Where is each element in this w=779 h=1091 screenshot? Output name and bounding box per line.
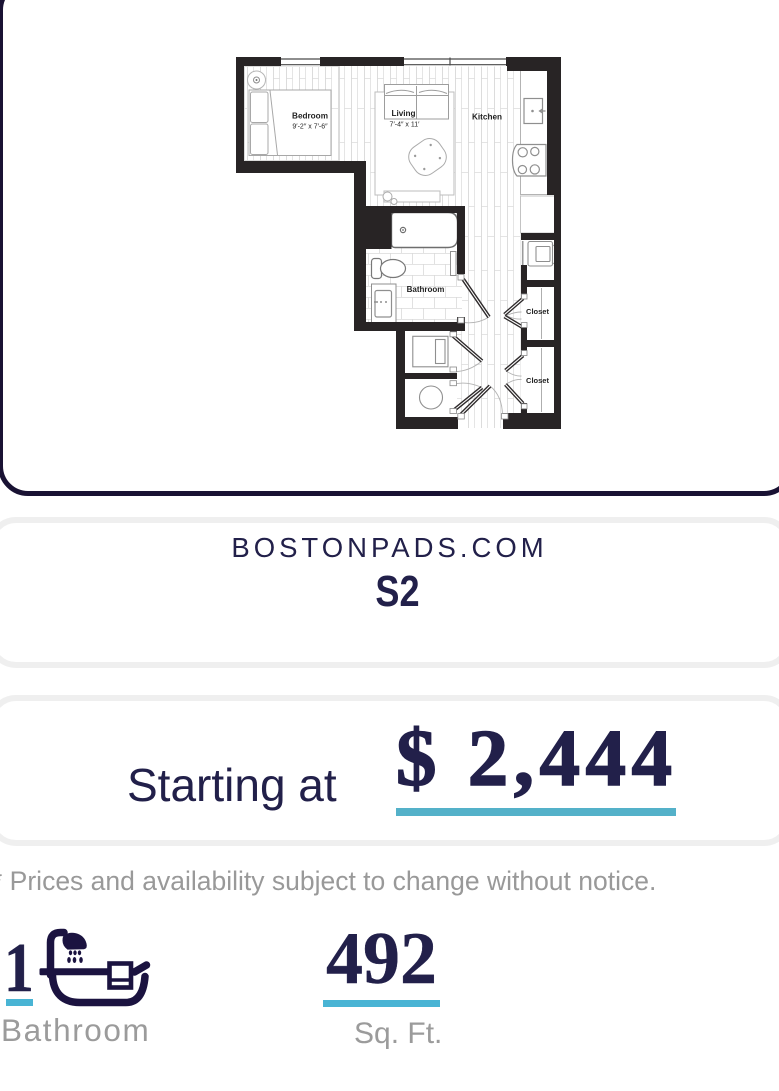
svg-text:7′-4″ x 11′: 7′-4″ x 11′ <box>390 122 421 129</box>
svg-text:Kitchen: Kitchen <box>472 113 502 122</box>
svg-text:Bathroom: Bathroom <box>407 285 445 294</box>
svg-text:Living: Living <box>391 109 415 118</box>
svg-text:Closet: Closet <box>526 376 549 385</box>
svg-text:Bedroom: Bedroom <box>292 112 328 121</box>
svg-text:Closet: Closet <box>526 307 549 316</box>
svg-text:9′-2″ x 7′-6″: 9′-2″ x 7′-6″ <box>292 124 328 131</box>
